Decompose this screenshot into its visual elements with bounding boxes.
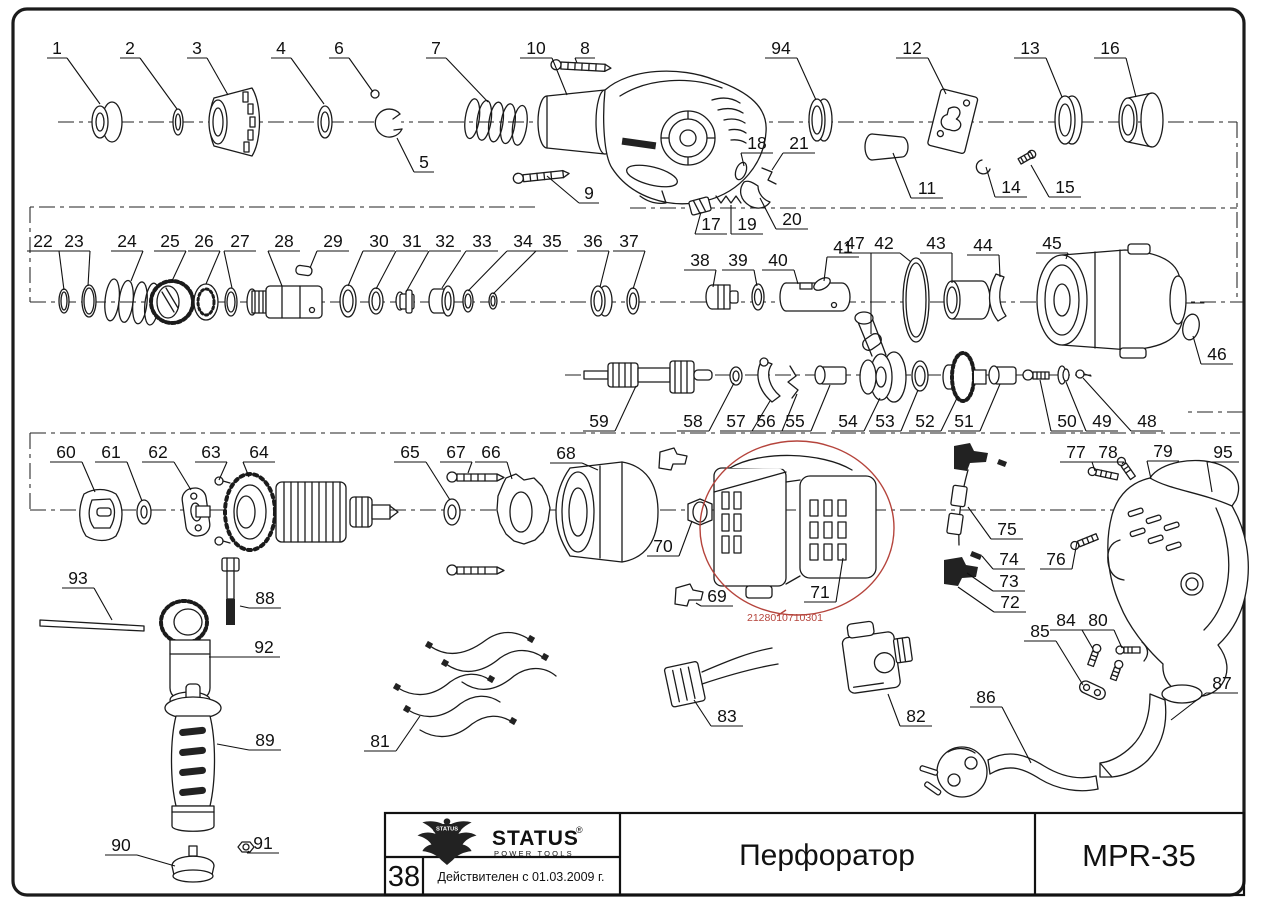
part-number-18: 18: [747, 133, 766, 153]
part-number-31: 31: [402, 231, 421, 251]
part-callout-19: 19: [731, 205, 763, 234]
row4-motor-parts: [80, 448, 876, 606]
part-number-62: 62: [148, 442, 167, 462]
part-callout-37: 37: [613, 231, 645, 289]
part-callout-82: 82: [888, 694, 932, 726]
part-number-87: 87: [1212, 673, 1231, 693]
part-number-8: 8: [580, 38, 590, 58]
part-callout-74: 74: [982, 549, 1025, 569]
part-number-86: 86: [976, 687, 995, 707]
part-number-75: 75: [997, 519, 1016, 539]
part-callout-89: 89: [217, 730, 281, 750]
part-callout-52: 52: [909, 396, 958, 431]
part-number-54: 54: [838, 411, 858, 431]
part-number-9: 9: [584, 183, 594, 203]
part-number-1: 1: [52, 38, 62, 58]
part-number-11: 11: [918, 178, 936, 198]
part-number-69: 69: [707, 586, 726, 606]
part-number-21: 21: [789, 133, 808, 153]
screw-9: [513, 168, 570, 184]
part-number-17: 17: [701, 214, 720, 234]
part-callout-13: 13: [1014, 38, 1062, 97]
part-number-55: 55: [785, 411, 804, 431]
part-number-35: 35: [542, 231, 561, 251]
part-callout-55: 55: [779, 385, 830, 431]
part-number-30: 30: [369, 231, 389, 251]
part-callout-64: 64: [243, 442, 275, 477]
part-callout-2: 2: [120, 38, 177, 109]
part-callout-75: 75: [968, 507, 1023, 539]
part-number-2: 2: [125, 38, 135, 58]
part-callout-44: 44: [967, 235, 1000, 277]
part-number-36: 36: [583, 231, 602, 251]
part-callout-3: 3: [187, 38, 228, 95]
part-number-14: 14: [1001, 177, 1021, 197]
part-number-48: 48: [1137, 411, 1156, 431]
part-number-61: 61: [101, 442, 120, 462]
part-callout-63: 63: [195, 442, 227, 480]
part-number-33: 33: [472, 231, 491, 251]
part-number-47: 47: [845, 233, 864, 253]
part-callout-1: 1: [47, 38, 100, 104]
part-callout-21: 21: [772, 133, 815, 170]
part-number-79: 79: [1153, 441, 1172, 461]
part-number-77: 77: [1066, 442, 1085, 462]
part-number-80: 80: [1088, 610, 1108, 630]
part-number-66: 66: [481, 442, 500, 462]
brand-reg-mark: ®: [576, 825, 583, 835]
part-callout-7: 7: [426, 38, 488, 102]
part-callout-62: 62: [142, 442, 191, 490]
part-number-56: 56: [756, 411, 775, 431]
part-callout-12: 12: [896, 38, 946, 94]
part-number-95: 95: [1213, 442, 1232, 462]
part-number-57: 57: [726, 411, 745, 431]
red-code-label: 2128010710301: [747, 612, 823, 624]
part-number-10: 10: [526, 38, 546, 58]
part-number-76: 76: [1046, 549, 1065, 569]
part-callout-17: 17: [695, 212, 727, 234]
part-number-5: 5: [419, 152, 429, 172]
part-number-49: 49: [1092, 411, 1111, 431]
part-number-16: 16: [1100, 38, 1119, 58]
product-title: Перфоратор: [739, 839, 915, 872]
part-number-22: 22: [33, 231, 52, 251]
part-number-94: 94: [771, 38, 791, 58]
part-number-78: 78: [1098, 442, 1117, 462]
part-callout-65: 65: [394, 442, 450, 500]
exploded-parts-diagram: 2128010710301: [0, 0, 1280, 904]
part-callout-77: 77: [1060, 442, 1095, 471]
part-callout-30: 30: [348, 231, 395, 286]
part-number-23: 23: [64, 231, 83, 251]
part-number-60: 60: [56, 442, 76, 462]
part-callout-88: 88: [240, 588, 281, 608]
part-number-89: 89: [255, 730, 274, 750]
part-callout-92: 92: [209, 637, 280, 657]
part-number-51: 51: [954, 411, 973, 431]
part-number-19: 19: [737, 214, 756, 234]
part-number-92: 92: [254, 637, 273, 657]
part-number-38: 38: [690, 250, 709, 270]
part-callout-25: 25: [154, 231, 186, 281]
part-number-65: 65: [400, 442, 419, 462]
part-callout-54: 54: [832, 398, 880, 431]
part-callout-59: 59: [583, 386, 636, 431]
part-callout-36: 36: [577, 231, 609, 287]
part-number-25: 25: [160, 231, 179, 251]
part-callout-83: 83: [694, 700, 743, 726]
part-number-82: 82: [906, 706, 925, 726]
part-callout-81: 81: [364, 716, 420, 751]
part-number-12: 12: [902, 38, 921, 58]
part-callout-50: 50: [1040, 380, 1083, 431]
part-number-44: 44: [973, 235, 993, 255]
part-number-58: 58: [683, 411, 702, 431]
side-handle-parts: [40, 558, 254, 882]
part-callout-85: 85: [1024, 621, 1083, 685]
part-callout-28: 28: [268, 231, 300, 286]
part-callout-94: 94: [765, 38, 816, 100]
part-number-88: 88: [255, 588, 274, 608]
part-callout-22: 22: [27, 231, 64, 290]
part-callout-39: 39: [722, 250, 757, 286]
part-callout-11: 11: [893, 153, 943, 198]
part-callout-6: 6: [329, 38, 373, 92]
part-number-83: 83: [717, 706, 736, 726]
part-callout-67: 67: [440, 442, 472, 473]
row3-crank-parts: [584, 312, 1091, 402]
part-callout-80: 80: [1082, 610, 1122, 648]
part-number-43: 43: [926, 233, 945, 253]
part-callout-16: 16: [1094, 38, 1136, 97]
part-callout-40: 40: [762, 250, 798, 284]
part-number-20: 20: [782, 209, 802, 229]
part-number-93: 93: [68, 568, 87, 588]
motor-stator: [714, 455, 876, 598]
part-number-68: 68: [556, 443, 575, 463]
logo-banner-text: STATUS: [436, 827, 458, 833]
part-number-34: 34: [513, 231, 533, 251]
screw-8: [551, 59, 611, 72]
part-callout-8: 8: [575, 38, 595, 63]
part-callout-46: 46: [1193, 336, 1233, 364]
part-number-73: 73: [999, 571, 1018, 591]
part-number-7: 7: [431, 38, 441, 58]
validity-note: Действителен с 01.03.2009 г.: [437, 870, 604, 884]
part-number-70: 70: [653, 536, 673, 556]
part-number-63: 63: [201, 442, 220, 462]
part-number-91: 91: [253, 833, 272, 853]
part-number-39: 39: [728, 250, 747, 270]
model-number: MPR-35: [1082, 838, 1196, 873]
part-number-46: 46: [1207, 344, 1226, 364]
part-callout-14: 14: [986, 167, 1027, 197]
part-number-53: 53: [875, 411, 894, 431]
part-number-6: 6: [334, 38, 344, 58]
brush-and-housing-parts: [920, 443, 1249, 797]
part-number-81: 81: [370, 731, 389, 751]
part-callout-15: 15: [1031, 165, 1081, 197]
part-callout-5: 5: [397, 138, 434, 172]
part-number-85: 85: [1030, 621, 1049, 641]
part-callout-38: 38: [684, 250, 716, 287]
part-number-13: 13: [1020, 38, 1039, 58]
part-number-74: 74: [999, 549, 1019, 569]
part-callout-27: 27: [224, 231, 256, 288]
part-callout-60: 60: [50, 442, 95, 492]
part-number-28: 28: [274, 231, 293, 251]
part-number-72: 72: [1000, 592, 1019, 612]
hammer-head: [538, 71, 766, 204]
part-number-24: 24: [117, 231, 137, 251]
part-number-32: 32: [435, 231, 454, 251]
part-number-37: 37: [619, 231, 638, 251]
part-number-67: 67: [446, 442, 465, 462]
part-callout-90: 90: [105, 835, 175, 866]
part-number-90: 90: [111, 835, 131, 855]
part-number-27: 27: [230, 231, 249, 251]
brand-name: STATUS: [492, 827, 579, 850]
switch-and-wiring: [393, 616, 916, 736]
part-number-3: 3: [192, 38, 202, 58]
brand-subtitle: POWER TOOLS: [494, 849, 574, 858]
part-number-40: 40: [768, 250, 788, 270]
part-callout-86: 86: [970, 687, 1031, 763]
part-number-64: 64: [249, 442, 269, 462]
part-number-26: 26: [194, 231, 213, 251]
sheet-number: 38: [388, 861, 420, 893]
part-number-59: 59: [589, 411, 608, 431]
title-block: STATUS STATUS ® POWER TOOLS 38 Действите…: [385, 813, 1244, 895]
part-callout-26: 26: [188, 231, 220, 284]
part-callout-42: 42: [868, 233, 911, 262]
part-number-52: 52: [915, 411, 934, 431]
part-callout-4: 4: [271, 38, 324, 104]
row2-barrel-parts: [59, 244, 1204, 370]
row1-right-parts: [809, 88, 1163, 173]
part-number-4: 4: [276, 38, 286, 58]
part-number-45: 45: [1042, 233, 1061, 253]
part-number-29: 29: [323, 231, 342, 251]
part-callout-24: 24: [111, 231, 143, 281]
part-callout-29: 29: [310, 231, 349, 268]
part-number-71: 71: [810, 582, 829, 602]
part-number-42: 42: [874, 233, 893, 253]
part-number-84: 84: [1056, 610, 1076, 630]
part-number-15: 15: [1055, 177, 1074, 197]
part-callout-9: 9: [547, 176, 599, 203]
part-callout-93: 93: [62, 568, 112, 620]
part-number-50: 50: [1057, 411, 1077, 431]
